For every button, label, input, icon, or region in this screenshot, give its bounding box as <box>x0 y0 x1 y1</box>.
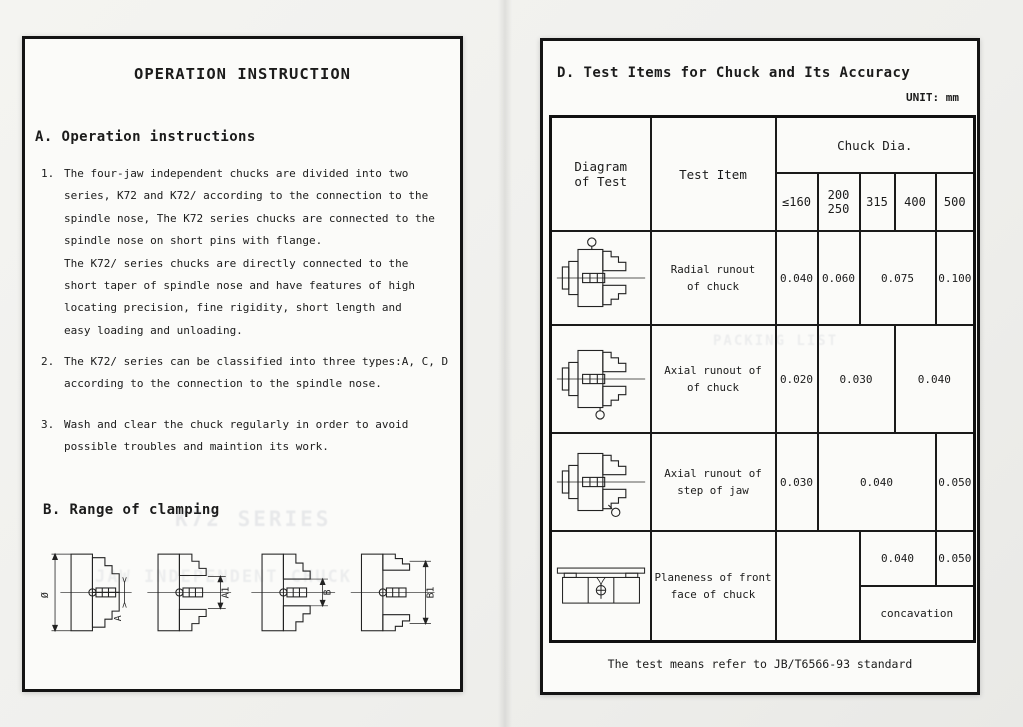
chuck-clamping-diagram-3: B <box>246 537 344 655</box>
diagram-cell <box>551 531 651 642</box>
item-text: Wash and clear the chuck regularly in or… <box>64 414 408 459</box>
dimension-label: Ø <box>39 592 51 598</box>
instruction-item-3: 3. Wash and clear the chuck regularly in… <box>41 414 449 459</box>
value-cell: 0.040 <box>895 325 975 433</box>
planeness-diagram <box>554 556 648 616</box>
right-page: D. Test Items for Chuck and Its Accuracy… <box>540 38 980 695</box>
test-item-cell: Planeness of front face of chuck <box>651 531 776 642</box>
table-row: Axial runout of of chuck 0.020 0.030 0.0… <box>551 325 975 433</box>
chuck-clamping-diagram-1: Ø A <box>39 537 137 655</box>
axial-runout-chuck-diagram <box>555 336 647 422</box>
size-column-header: 500 <box>936 173 975 231</box>
value-cell: 0.060 <box>818 231 860 325</box>
column-header-diagram: Diagram of Test <box>551 117 651 232</box>
dimension-label: B <box>322 589 333 595</box>
size-column-header: 400 <box>895 173 936 231</box>
item-text: The K72/ series can be classified into t… <box>64 351 448 396</box>
left-page: OPERATION INSTRUCTION A. Operation instr… <box>22 36 463 692</box>
chuck-clamping-diagram-4: B1 <box>349 537 447 655</box>
section-b-heading: B. Range of clamping <box>43 502 220 518</box>
value-cell: 0.020 <box>776 325 818 433</box>
value-cell: 0.040 <box>818 433 936 531</box>
page-title: OPERATION INSTRUCTION <box>25 65 460 83</box>
item-number: 1. <box>41 163 57 342</box>
page-fold-shadow <box>498 0 512 727</box>
item-text: The four-jaw independent chucks are divi… <box>64 163 435 342</box>
value-cell: 0.100 <box>936 231 975 325</box>
instruction-item-1: 1. The four-jaw independent chucks are d… <box>41 163 449 342</box>
table-row: Planeness of front face of chuck 0.040 0… <box>551 531 975 586</box>
test-item-cell: Axial runout of of chuck <box>651 325 776 433</box>
chuck-clamping-diagram-2: A1 <box>142 537 240 655</box>
section-a-heading: A. Operation instructions <box>35 129 256 145</box>
unit-label: UNIT: mm <box>906 91 959 104</box>
concavation-cell: concavation <box>860 586 975 642</box>
column-header-chuck-dia: Chuck Dia. <box>776 117 975 174</box>
size-column-header: ≤160 <box>776 173 818 231</box>
instruction-item-2: 2. The K72/ series can be classified int… <box>41 351 449 396</box>
value-cell: 0.030 <box>818 325 895 433</box>
scanned-manual-spread: { "left_page": { "title": "OPERATION INS… <box>0 0 1023 727</box>
value-cell: 0.050 <box>936 531 975 586</box>
dimension-label: A1 <box>221 586 232 598</box>
empty-value-cell <box>776 531 860 642</box>
section-d-heading: D. Test Items for Chuck and Its Accuracy <box>557 65 910 81</box>
dimension-label: A <box>113 615 124 621</box>
item-number: 3. <box>41 414 57 459</box>
diagram-cell <box>551 433 651 531</box>
size-column-header: 315 <box>860 173 895 231</box>
accuracy-test-table: Diagram of Test Test Item Chuck Dia. ≤16… <box>549 115 976 643</box>
item-number: 2. <box>41 351 57 396</box>
radial-runout-diagram <box>555 235 647 321</box>
value-cell: 0.040 <box>776 231 818 325</box>
value-cell: 0.075 <box>860 231 936 325</box>
table-row: Radial runout of chuck 0.040 0.060 0.075… <box>551 231 975 325</box>
clamping-range-diagrams: Ø A A1 <box>39 537 447 657</box>
axial-runout-jaw-diagram <box>555 439 647 525</box>
value-cell: 0.030 <box>776 433 818 531</box>
value-cell: 0.040 <box>860 531 936 586</box>
diagram-cell <box>551 231 651 325</box>
test-item-cell: Axial runout of step of jaw <box>651 433 776 531</box>
dimension-label: B1 <box>426 586 437 598</box>
diagram-cell <box>551 325 651 433</box>
table-row: Axial runout of step of jaw 0.030 0.040 … <box>551 433 975 531</box>
size-column-header: 200 250 <box>818 173 860 231</box>
value-cell: 0.050 <box>936 433 975 531</box>
test-item-cell: Radial runout of chuck <box>651 231 776 325</box>
column-header-test-item: Test Item <box>651 117 776 232</box>
table-footnote: The test means refer to JB/T6566-93 stan… <box>543 657 977 671</box>
table-header-row-1: Diagram of Test Test Item Chuck Dia. <box>551 117 975 174</box>
